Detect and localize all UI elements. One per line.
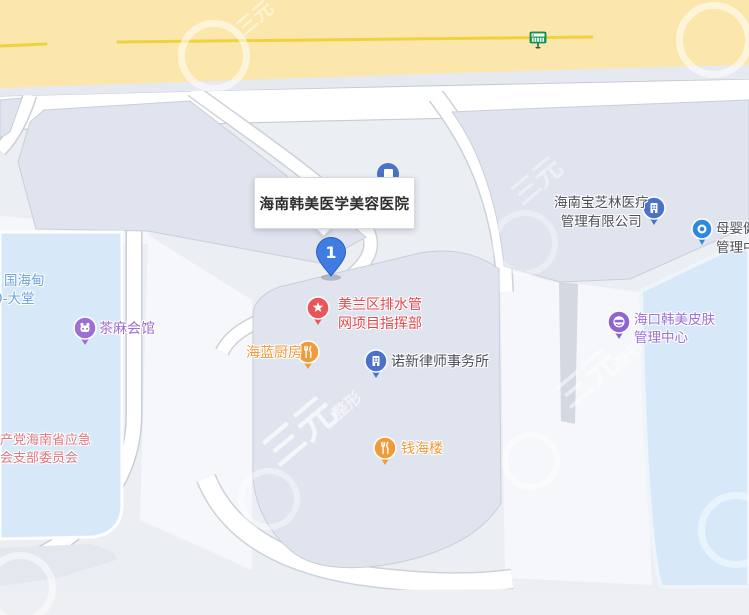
bus-stop-icon[interactable]	[528, 29, 548, 49]
poi-label-haidian-line1[interactable]: 国海甸	[4, 272, 45, 290]
face-pin-icon[interactable]	[607, 310, 631, 340]
poi-label-emergency-committee[interactable]: 共产党海南省应急 协会支部委员会	[0, 432, 91, 468]
campus-area-right	[641, 239, 749, 587]
star-pin-icon[interactable]	[306, 296, 330, 326]
main-callout-title: 海南韩美医学美容医院	[260, 193, 410, 214]
bottom-strip	[0, 588, 749, 615]
result-marker-1[interactable]: 1	[313, 235, 349, 281]
marker-number: 1	[325, 243, 336, 262]
highway-centerline-dash	[0, 44, 46, 46]
teahouse-pin-icon[interactable]	[73, 316, 97, 346]
map-viewport[interactable]: 三元 三元 三元 整形 三元 整形	[0, 0, 749, 615]
poi-label-qianhailou[interactable]: 钱海楼	[401, 440, 443, 458]
poi-label-haikou-hanmei-skin[interactable]: 海口韩美皮肤 管理中心	[634, 311, 715, 347]
poi-label-baozhilin[interactable]: 海南宝芝林医疗 管理有限公司	[554, 194, 649, 232]
poi-label-haidian-line2[interactable]: 0-大堂	[0, 290, 34, 308]
bus-stop-dot	[532, 34, 534, 36]
restaurant-pin-icon[interactable]	[373, 436, 397, 466]
poi-label-muying[interactable]: 母婴健 管理中	[716, 220, 749, 258]
poi-label-nuoxin-lawfirm[interactable]: 诺新律师事务所	[391, 353, 489, 371]
office-pin-icon[interactable]	[364, 349, 388, 379]
building-sliver	[559, 282, 578, 424]
poi-label-hailan-kitchen[interactable]: 海蓝厨房	[246, 344, 302, 362]
poi-label-chama-club[interactable]: 茶麻会馆	[99, 320, 155, 338]
main-callout[interactable]: 海南韩美医学美容医院	[254, 177, 415, 229]
poi-label-meilan-drainage[interactable]: 美兰区排水管 网项目指挥部	[338, 296, 422, 334]
dot-pin-icon[interactable]	[690, 218, 714, 248]
